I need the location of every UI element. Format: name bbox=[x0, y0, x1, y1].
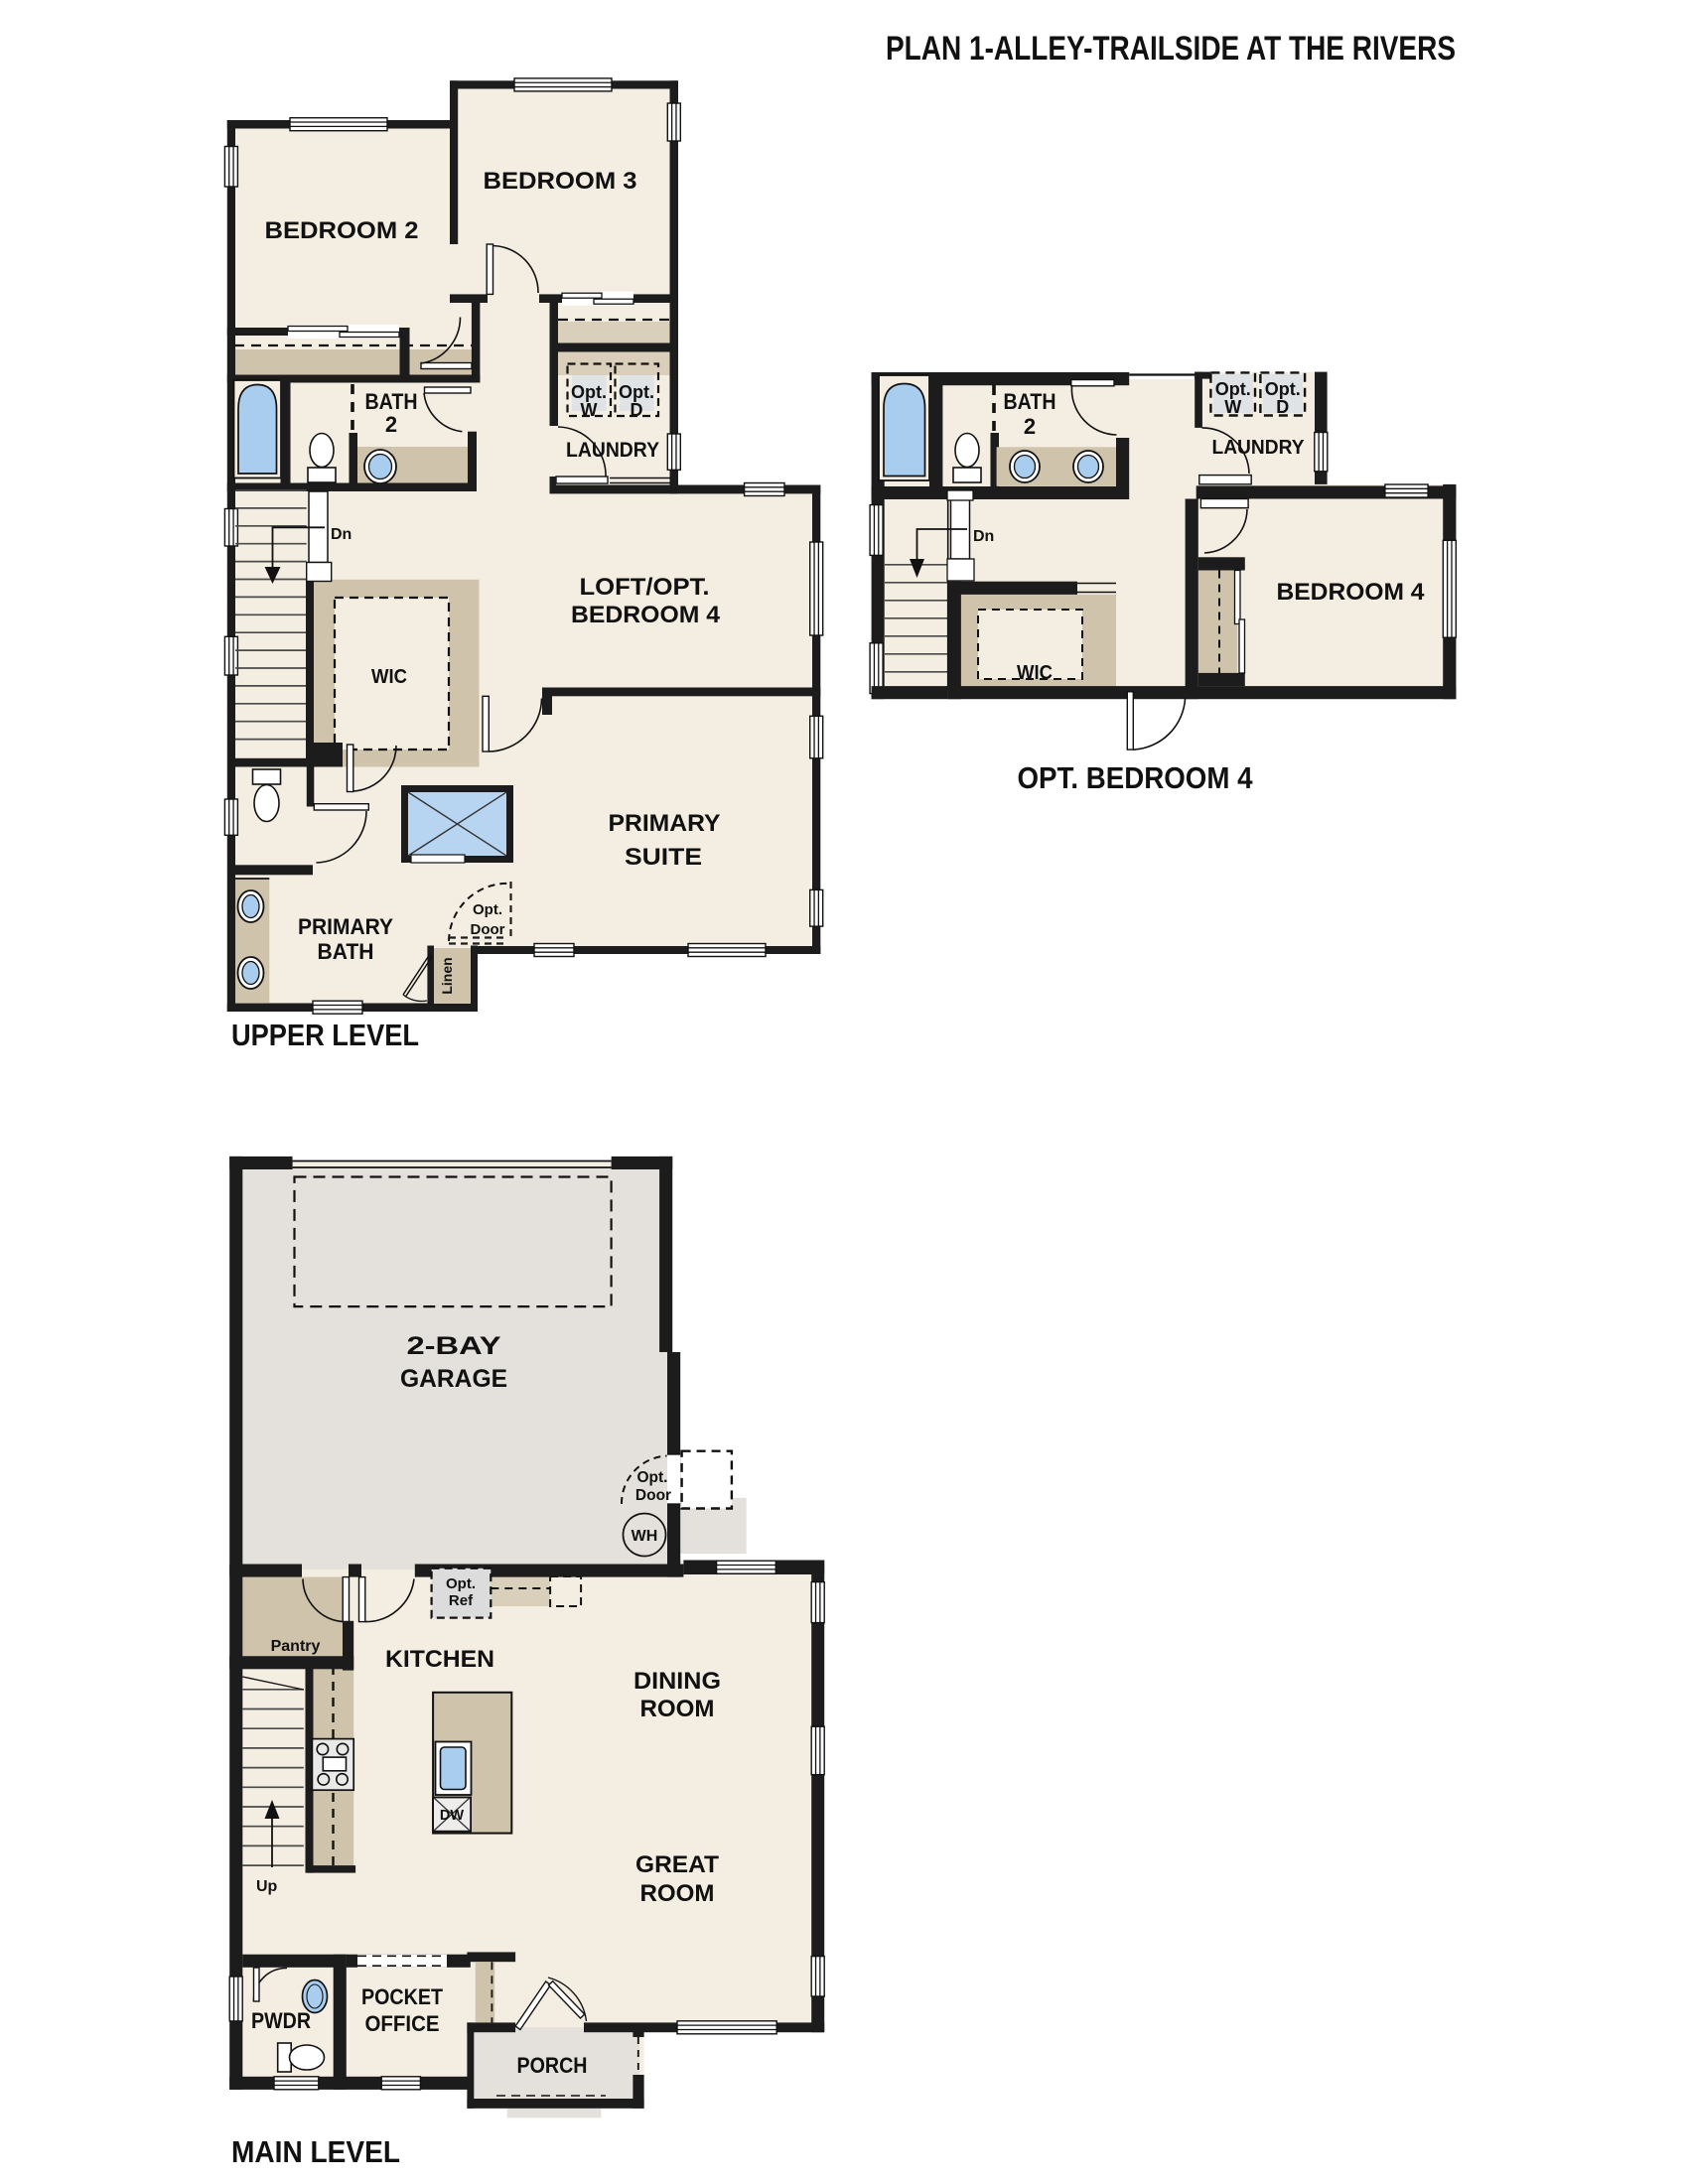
svg-text:Opt.: Opt. bbox=[571, 382, 607, 402]
svg-text:2: 2 bbox=[1024, 414, 1036, 439]
svg-text:Door: Door bbox=[635, 1487, 671, 1504]
svg-text:W: W bbox=[581, 400, 598, 420]
svg-text:WIC: WIC bbox=[371, 666, 407, 688]
svg-text:WIC: WIC bbox=[1017, 662, 1053, 684]
svg-text:2: 2 bbox=[385, 412, 397, 437]
svg-text:PRIMARY: PRIMARY bbox=[298, 914, 393, 939]
svg-text:PWDR: PWDR bbox=[251, 2008, 311, 2033]
svg-text:Up: Up bbox=[256, 1878, 278, 1895]
svg-text:BATH: BATH bbox=[318, 939, 374, 964]
svg-text:DW: DW bbox=[440, 1808, 464, 1824]
svg-text:Ref: Ref bbox=[449, 1592, 474, 1609]
svg-text:Linen: Linen bbox=[439, 957, 455, 994]
svg-text:Opt.: Opt. bbox=[1215, 379, 1251, 399]
svg-text:BATH: BATH bbox=[365, 389, 418, 414]
svg-text:D: D bbox=[1276, 397, 1289, 417]
svg-text:SUITE: SUITE bbox=[625, 844, 702, 871]
svg-text:OFFICE: OFFICE bbox=[365, 2011, 440, 2036]
svg-text:DINING: DINING bbox=[633, 1668, 721, 1695]
svg-text:Door: Door bbox=[471, 921, 505, 938]
svg-text:ROOM: ROOM bbox=[640, 1696, 715, 1722]
svg-text:BEDROOM 2: BEDROOM 2 bbox=[265, 217, 419, 244]
svg-text:BEDROOM 3: BEDROOM 3 bbox=[484, 168, 637, 195]
svg-text:PLAN 1-ALLEY-TRAILSIDE AT THE: PLAN 1-ALLEY-TRAILSIDE AT THE RIVERS bbox=[886, 30, 1456, 68]
svg-text:BEDROOM 4: BEDROOM 4 bbox=[1277, 579, 1426, 606]
svg-text:WH: WH bbox=[632, 1528, 658, 1545]
svg-text:UPPER LEVEL: UPPER LEVEL bbox=[231, 1018, 419, 1052]
svg-text:KITCHEN: KITCHEN bbox=[385, 1646, 494, 1673]
svg-text:LAUNDRY: LAUNDRY bbox=[566, 439, 659, 462]
svg-text:Pantry: Pantry bbox=[271, 1638, 321, 1655]
svg-text:Opt.: Opt. bbox=[473, 901, 502, 918]
svg-text:Opt.: Opt. bbox=[619, 382, 654, 402]
svg-text:BATH: BATH bbox=[1004, 389, 1056, 414]
svg-text:Opt.: Opt. bbox=[446, 1575, 476, 1592]
svg-text:PORCH: PORCH bbox=[517, 2053, 588, 2078]
svg-text:GREAT: GREAT bbox=[635, 1851, 719, 1878]
svg-text:W: W bbox=[1224, 397, 1241, 417]
svg-text:MAIN LEVEL: MAIN LEVEL bbox=[231, 2134, 400, 2169]
svg-text:ROOM: ROOM bbox=[640, 1880, 715, 1907]
svg-text:2-BAY: 2-BAY bbox=[407, 1332, 501, 1360]
svg-text:D: D bbox=[631, 400, 643, 420]
svg-text:LAUNDRY: LAUNDRY bbox=[1212, 437, 1306, 459]
svg-text:LOFT/OPT.: LOFT/OPT. bbox=[580, 574, 710, 601]
svg-text:POCKET: POCKET bbox=[361, 1984, 443, 2009]
svg-text:PRIMARY: PRIMARY bbox=[609, 810, 721, 837]
svg-text:Opt.: Opt. bbox=[637, 1469, 668, 1486]
svg-text:Opt.: Opt. bbox=[1265, 379, 1301, 399]
svg-text:Dn: Dn bbox=[973, 528, 994, 545]
svg-text:Dn: Dn bbox=[331, 526, 352, 543]
svg-text:GARAGE: GARAGE bbox=[400, 1365, 507, 1393]
svg-text:BEDROOM 4: BEDROOM 4 bbox=[571, 602, 721, 628]
svg-text:OPT. BEDROOM 4: OPT. BEDROOM 4 bbox=[1018, 760, 1254, 795]
